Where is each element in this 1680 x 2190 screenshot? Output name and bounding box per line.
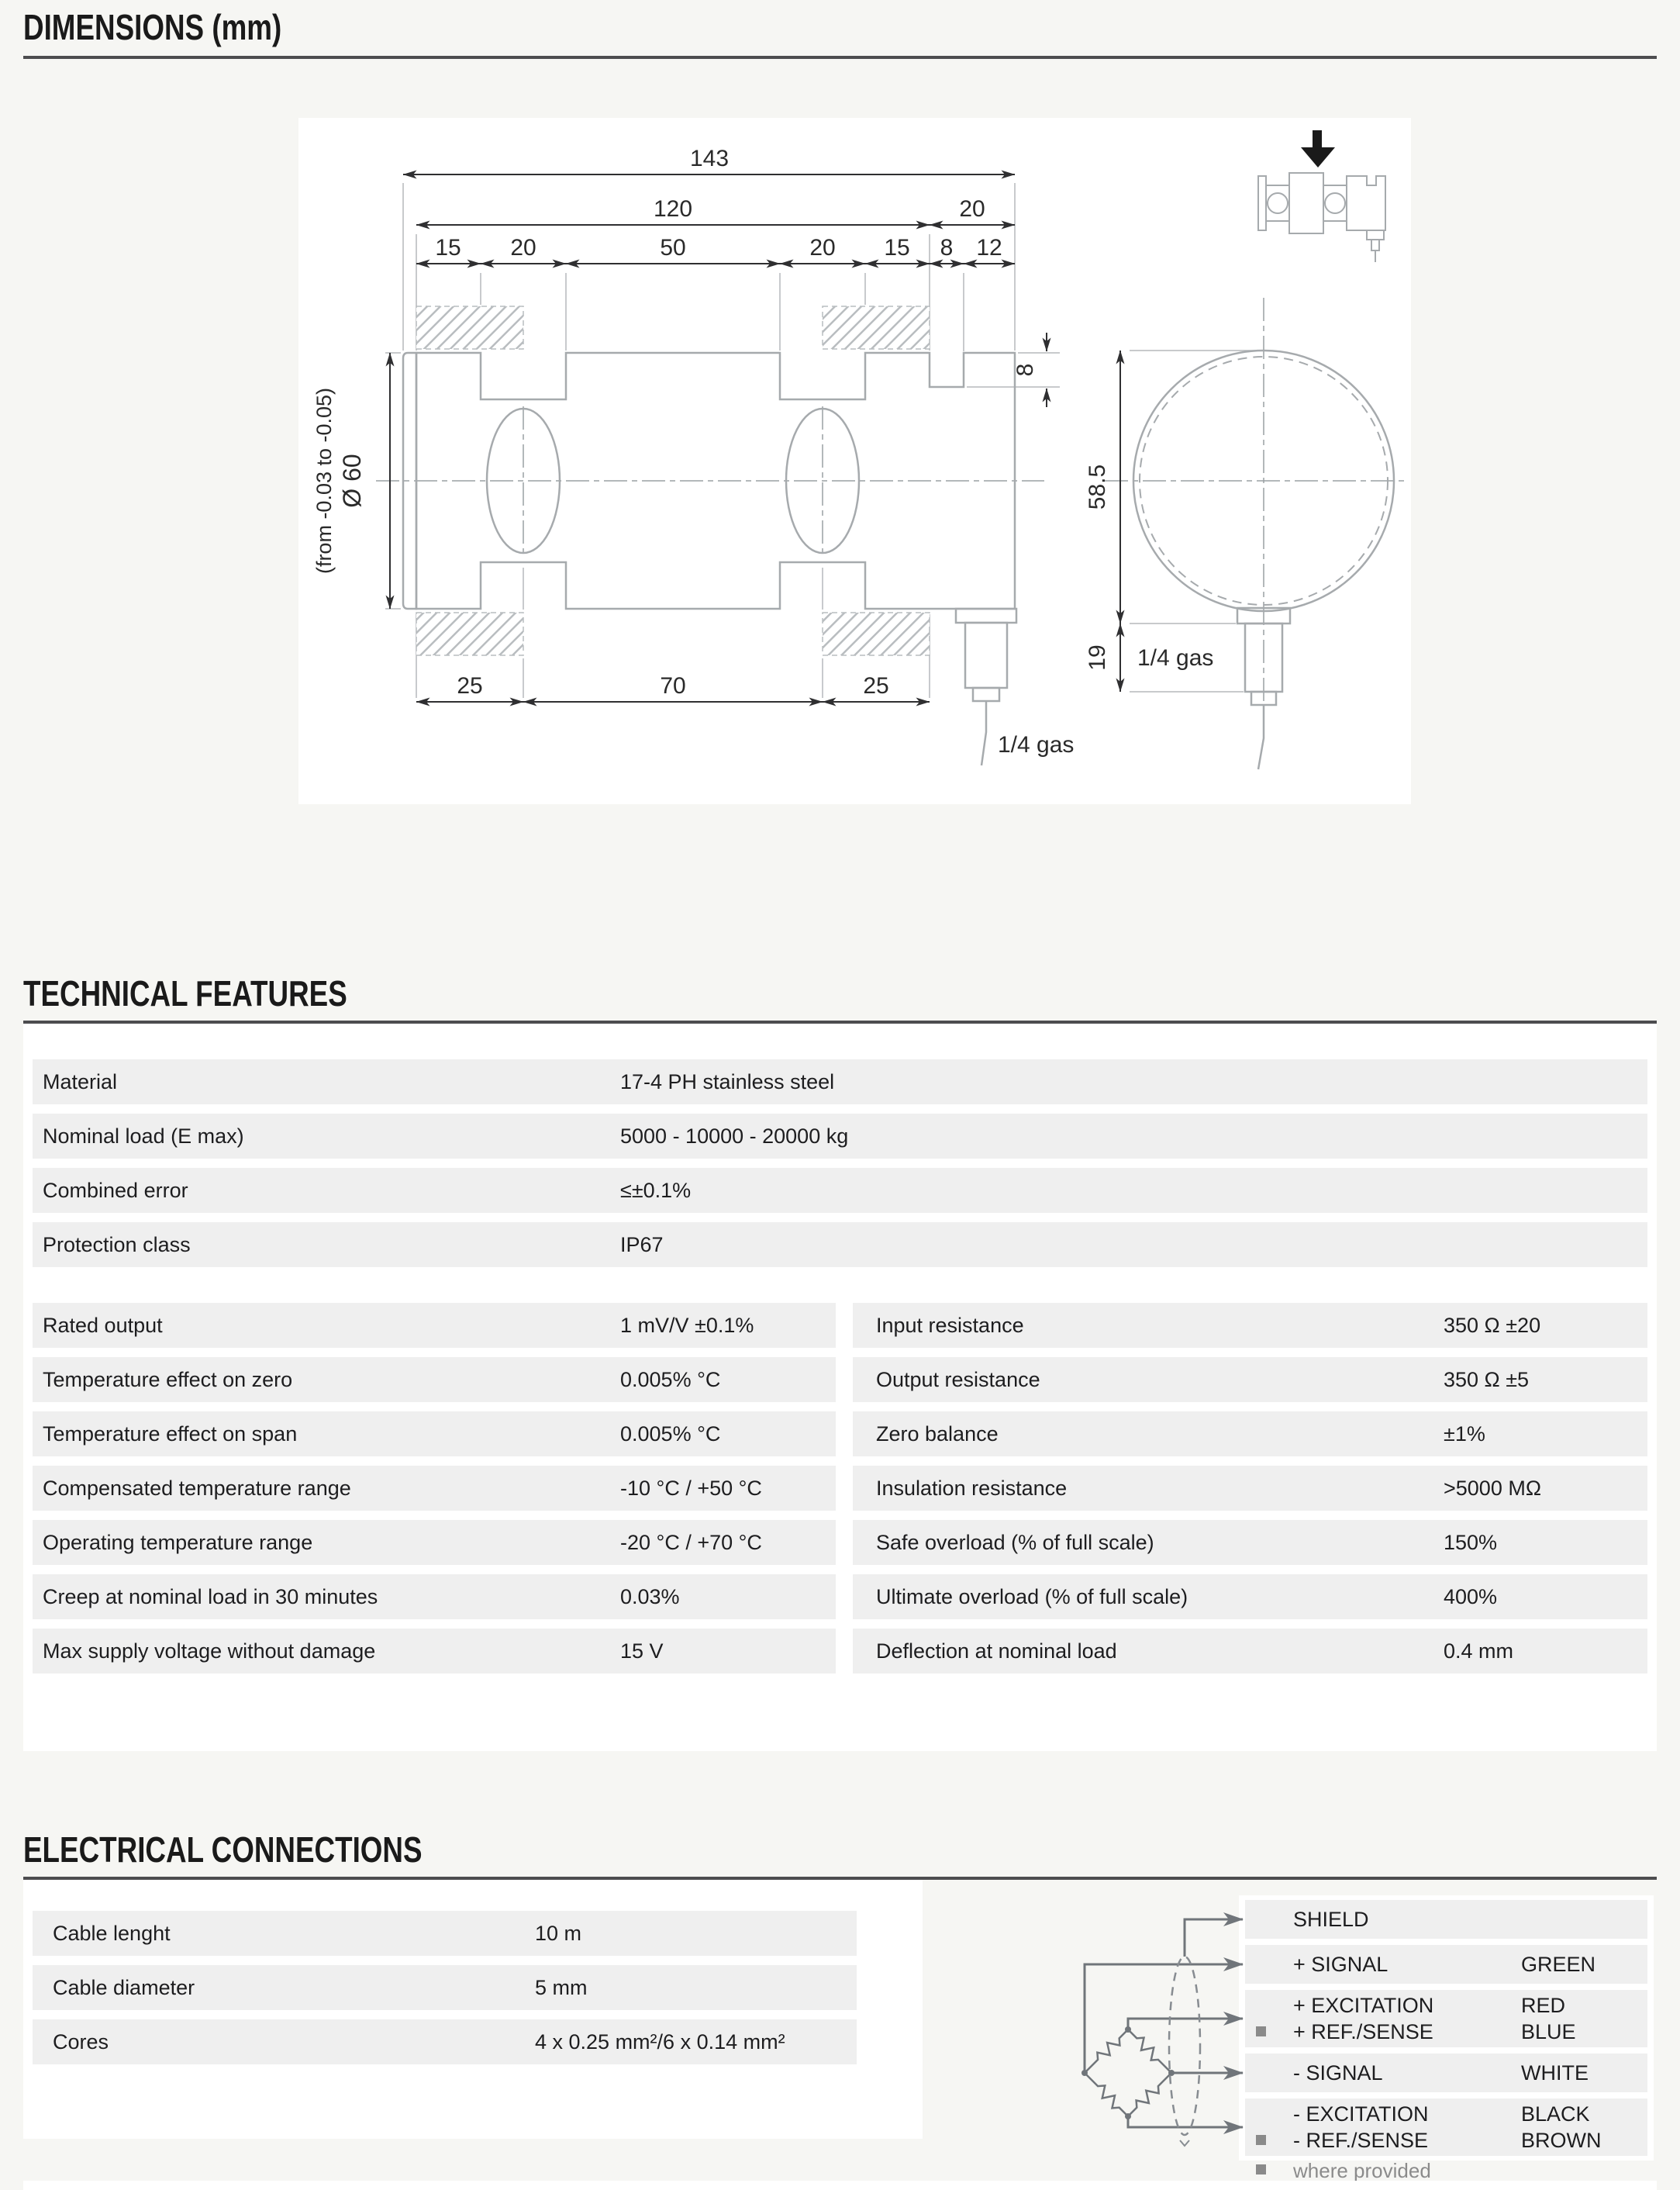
bottom-strip bbox=[23, 2181, 1657, 2190]
wiring-row-shield: SHIELD bbox=[1245, 1900, 1647, 1939]
dimensions-rule bbox=[23, 56, 1657, 59]
table-row: Insulation resistance >5000 MΩ bbox=[853, 1466, 1647, 1511]
wiring-row-neg-signal: - SIGNAL WHITE bbox=[1245, 2054, 1647, 2092]
row-label: Combined error bbox=[43, 1168, 188, 1213]
provided-marker-icon bbox=[1256, 2164, 1266, 2174]
row-value: 1 mV/V ±0.1% bbox=[620, 1303, 754, 1348]
wiring-row-pos-excitation: + EXCITATION RED + REF./SENSE BLUE bbox=[1245, 1990, 1647, 2047]
dim-connector-length: 19 bbox=[1085, 644, 1110, 670]
wheatstone-bridge-diagram bbox=[1054, 1898, 1245, 2171]
thread-label-side: 1/4 gas bbox=[1137, 645, 1213, 671]
table-row: Material 17-4 PH stainless steel bbox=[33, 1059, 1647, 1104]
table-row: Operating temperature range -20 °C / +70… bbox=[33, 1520, 836, 1565]
dim-seg-d: 20 bbox=[809, 235, 835, 261]
dim-seg-b: 20 bbox=[510, 235, 536, 261]
row-value: -10 °C / +50 °C bbox=[620, 1466, 762, 1511]
dim-seg-c: 50 bbox=[660, 235, 685, 261]
dim-seg-a: 15 bbox=[435, 235, 461, 261]
table-row: Output resistance 350 Ω ±5 bbox=[853, 1357, 1647, 1402]
table-row: Rated output 1 mV/V ±0.1% bbox=[33, 1303, 836, 1348]
provided-marker-icon bbox=[1256, 2135, 1266, 2145]
footnote: where provided bbox=[1245, 2157, 1647, 2184]
row-value: 350 Ω ±5 bbox=[1444, 1357, 1529, 1402]
table-row: Nominal load (E max) 5000 - 10000 - 2000… bbox=[33, 1114, 1647, 1159]
row-label: Material bbox=[43, 1059, 117, 1104]
wire-label: + SIGNAL bbox=[1293, 1951, 1388, 1978]
row-value: 15 V bbox=[620, 1629, 664, 1674]
wire-color: BROWN bbox=[1521, 2127, 1602, 2154]
wiring-row-neg-excitation: - EXCITATION BLACK - REF./SENSE BROWN bbox=[1245, 2098, 1647, 2156]
cable-shield-ellipse bbox=[1169, 1957, 1200, 2135]
row-label: Temperature effect on zero bbox=[43, 1357, 292, 1402]
electrical-connections-title: ELECTRICAL CONNECTIONS bbox=[23, 1829, 423, 1870]
thread-label-front: 1/4 gas bbox=[998, 732, 1074, 758]
row-label: Rated output bbox=[43, 1303, 163, 1348]
wire-color: BLUE bbox=[1521, 2019, 1576, 2045]
row-label: Temperature effect on span bbox=[43, 1411, 297, 1456]
wire-color: WHITE bbox=[1521, 2060, 1589, 2086]
row-label: Protection class bbox=[43, 1222, 191, 1267]
provided-marker-icon bbox=[1256, 2026, 1266, 2036]
row-value: -20 °C / +70 °C bbox=[620, 1520, 762, 1565]
bridge-resistors bbox=[1081, 2026, 1175, 2120]
dimension-drawing: 143 120 20 15 20 50 20 15 8 12 25 70 25 … bbox=[298, 118, 1411, 804]
row-value: 17-4 PH stainless steel bbox=[620, 1059, 834, 1104]
row-label: Cable diameter bbox=[53, 1965, 195, 2010]
table-row: Creep at nominal load in 30 minutes 0.03… bbox=[33, 1574, 836, 1619]
dim-total-length: 143 bbox=[690, 146, 729, 171]
wire-label: + EXCITATION bbox=[1293, 1992, 1433, 2019]
row-value: 400% bbox=[1444, 1574, 1497, 1619]
row-value: 5000 - 10000 - 20000 kg bbox=[620, 1114, 848, 1159]
row-label: Cable lenght bbox=[53, 1911, 171, 1956]
table-row: Deflection at nominal load 0.4 mm bbox=[853, 1629, 1647, 1674]
row-value: 0.005% °C bbox=[620, 1357, 720, 1402]
dimensions-title: DIMENSIONS (mm) bbox=[23, 6, 281, 48]
dim-diameter-tolerance: (from -0.03 to -0.05) bbox=[312, 388, 336, 574]
table-row: Input resistance 350 Ω ±20 bbox=[853, 1303, 1647, 1348]
row-label: Deflection at nominal load bbox=[876, 1629, 1117, 1674]
row-value: ±1% bbox=[1444, 1411, 1485, 1456]
wire-label: SHIELD bbox=[1293, 1906, 1369, 1933]
row-value: IP67 bbox=[620, 1222, 664, 1267]
row-value: 5 mm bbox=[535, 1965, 588, 2010]
wire-color: RED bbox=[1521, 1992, 1565, 2019]
bridge-nodes bbox=[1081, 2026, 1175, 2119]
row-label: Cores bbox=[53, 2019, 109, 2064]
dim-seg-e: 15 bbox=[884, 235, 909, 261]
table-row: Temperature effect on span 0.005% °C bbox=[33, 1411, 836, 1456]
dim-lower-c: 25 bbox=[863, 673, 888, 699]
wire-color: GREEN bbox=[1521, 1951, 1595, 1978]
wiring-row-pos-signal: + SIGNAL GREEN bbox=[1245, 1945, 1647, 1984]
table-row: Max supply voltage without damage 15 V bbox=[33, 1629, 836, 1674]
row-label: Insulation resistance bbox=[876, 1466, 1067, 1511]
table-row: Protection class IP67 bbox=[33, 1222, 1647, 1267]
row-value: 350 Ω ±20 bbox=[1444, 1303, 1540, 1348]
row-label: Nominal load (E max) bbox=[43, 1114, 244, 1159]
row-value: 10 m bbox=[535, 1911, 581, 1956]
dim-seg-f: 8 bbox=[940, 235, 954, 261]
row-value: >5000 MΩ bbox=[1444, 1466, 1541, 1511]
technical-features-title: TECHNICAL FEATURES bbox=[23, 972, 347, 1014]
row-value: 150% bbox=[1444, 1520, 1497, 1565]
wire-label: + REF./SENSE bbox=[1293, 2019, 1433, 2045]
dim-upper-end: 20 bbox=[959, 196, 985, 222]
row-label: Ultimate overload (% of full scale) bbox=[876, 1574, 1188, 1619]
table-row: Cores 4 x 0.25 mm²/6 x 0.14 mm² bbox=[33, 2019, 857, 2064]
row-label: Compensated temperature range bbox=[43, 1466, 351, 1511]
dim-notch-depth: 8 bbox=[1012, 364, 1038, 377]
table-row: Safe overload (% of full scale) 150% bbox=[853, 1520, 1647, 1565]
wire-color: BLACK bbox=[1521, 2101, 1590, 2127]
row-label: Max supply voltage without damage bbox=[43, 1629, 375, 1674]
row-label: Operating temperature range bbox=[43, 1520, 312, 1565]
dim-lower-a: 25 bbox=[457, 673, 482, 699]
dim-upper-length: 120 bbox=[654, 196, 692, 222]
row-value: 0.4 mm bbox=[1444, 1629, 1513, 1674]
row-value: 0.005% °C bbox=[620, 1411, 720, 1456]
row-label: Creep at nominal load in 30 minutes bbox=[43, 1574, 378, 1619]
row-label: Zero balance bbox=[876, 1411, 999, 1456]
dim-lower-b: 70 bbox=[660, 673, 685, 699]
wire-label: - REF./SENSE bbox=[1293, 2127, 1428, 2154]
row-value: 0.03% bbox=[620, 1574, 680, 1619]
table-row: Ultimate overload (% of full scale) 400% bbox=[853, 1574, 1647, 1619]
row-value: 4 x 0.25 mm²/6 x 0.14 mm² bbox=[535, 2019, 785, 2064]
row-label: Safe overload (% of full scale) bbox=[876, 1520, 1154, 1565]
table-row: Compensated temperature range -10 °C / +… bbox=[33, 1466, 836, 1511]
dim-diameter: Ø 60 bbox=[338, 454, 366, 507]
table-row: Combined error ≤±0.1% bbox=[33, 1168, 1647, 1213]
footnote-text: where provided bbox=[1293, 2157, 1431, 2184]
table-row: Cable lenght 10 m bbox=[33, 1911, 857, 1956]
shield-chevron bbox=[1180, 2140, 1189, 2146]
wire-label: - EXCITATION bbox=[1293, 2101, 1429, 2127]
table-row: Temperature effect on zero 0.005% °C bbox=[33, 1357, 836, 1402]
table-row: Cable diameter 5 mm bbox=[33, 1965, 857, 2010]
row-label: Output resistance bbox=[876, 1357, 1040, 1402]
datasheet-page: DIMENSIONS (mm) bbox=[0, 0, 1680, 2190]
dim-seg-g: 12 bbox=[976, 235, 1002, 261]
wire-label: - SIGNAL bbox=[1293, 2060, 1383, 2086]
dim-side-width: 58.5 bbox=[1085, 465, 1110, 510]
row-value: ≤±0.1% bbox=[620, 1168, 691, 1213]
row-label: Input resistance bbox=[876, 1303, 1024, 1348]
table-row: Zero balance ±1% bbox=[853, 1411, 1647, 1456]
